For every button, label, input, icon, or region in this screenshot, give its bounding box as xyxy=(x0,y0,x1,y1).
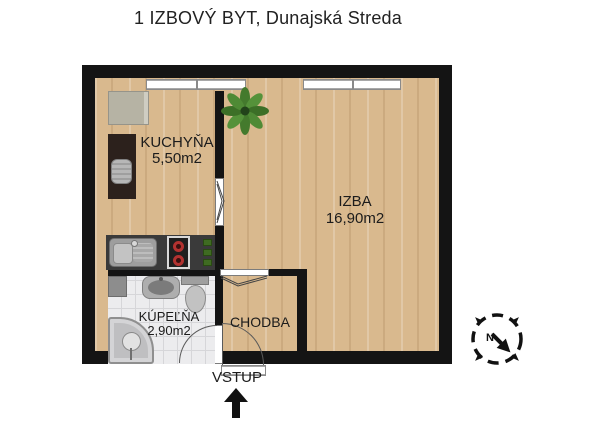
kitchen-name: KUCHYŇA xyxy=(128,135,226,151)
kitchen-label: KUCHYŇA 5,50m2 xyxy=(128,135,226,167)
entrance-label: VSTUP xyxy=(199,369,275,386)
wall-kitchen-living-lower xyxy=(215,226,224,269)
wall-hallway-right xyxy=(297,269,307,364)
hallway-name: CHODBA xyxy=(222,314,298,330)
plant-icon xyxy=(221,87,269,135)
shower-stem xyxy=(130,348,132,360)
faucet-icon xyxy=(131,240,138,247)
compass-north-label: N xyxy=(486,332,494,344)
page-title: 1 IZBOVÝ BYT, Dunajská Streda xyxy=(0,8,536,29)
kitchen-door-icon xyxy=(215,178,224,226)
burner-icon xyxy=(173,241,184,252)
bathroom-name: KÚPEĽŇA xyxy=(120,310,218,324)
bathroom-sink-icon xyxy=(142,276,180,299)
living-room-name: IZBA xyxy=(300,193,410,210)
kitchen-area: 5,50m2 xyxy=(128,151,226,167)
sink-basin xyxy=(113,243,133,264)
window-living-room xyxy=(303,79,401,90)
hallway-label: CHODBA xyxy=(222,314,298,330)
toilet-icon xyxy=(181,276,209,285)
burner-icon xyxy=(173,255,184,266)
knob-icon xyxy=(203,249,212,256)
compass-icon: N xyxy=(464,306,530,372)
bathroom-area: 2,90m2 xyxy=(120,324,218,338)
entry-arrow-stem xyxy=(232,401,240,418)
stove-icon xyxy=(167,236,190,269)
faucet-icon xyxy=(159,277,163,281)
knob-icon xyxy=(203,239,212,246)
entry-arrow-icon xyxy=(224,388,248,402)
cabinet-icon xyxy=(108,91,149,125)
bathroom-label: KÚPEĽŇA 2,90m2 xyxy=(120,310,218,338)
kitchen-sink-icon xyxy=(109,238,157,267)
living-room-area: 16,90m2 xyxy=(300,210,410,227)
hallway-door-icon xyxy=(220,269,269,276)
knob-icon xyxy=(203,259,212,266)
floor-plan: KUCHYŇA 5,50m2 IZBA 16,90m2 KÚPEĽŇA 2,90… xyxy=(82,65,452,364)
living-room-label: IZBA 16,90m2 xyxy=(300,193,410,227)
window-mullion xyxy=(196,80,198,89)
sink-bowl xyxy=(148,280,174,295)
kitchen-counter xyxy=(106,235,215,270)
window-mullion xyxy=(352,80,354,89)
washer-icon xyxy=(108,276,127,297)
